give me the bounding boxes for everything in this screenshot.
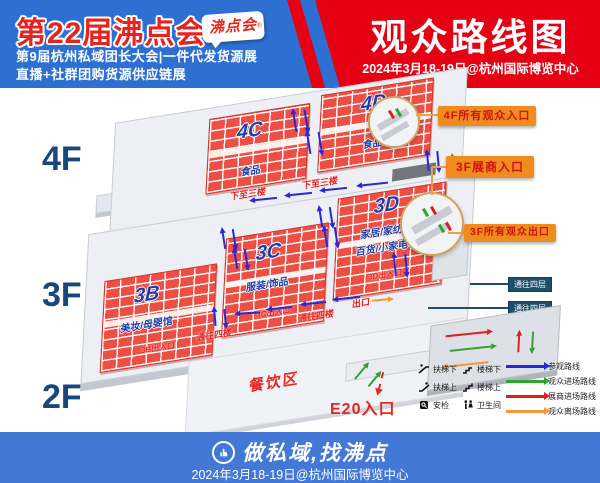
footer-slogan: 做私域,找沸点 — [242, 437, 388, 467]
route-arrow — [531, 332, 534, 349]
venue-map: 4F 3F 2F 4C 食品 4D 食品 下至三楼 下至三楼 — [0, 88, 600, 432]
legend-label: 安检 — [433, 400, 449, 411]
callout-connector — [432, 166, 446, 168]
header: 第22届沸点会 沸点会® 第9届杭州私域团长大会|一件代发货源展 直播+社群团购… — [0, 0, 600, 88]
hall-3b-category: 美妆/母婴馆 — [120, 312, 173, 336]
legend-route: 观众离场路线 — [506, 406, 596, 417]
floor-label-3f: 3F — [42, 276, 82, 315]
callout-connector — [431, 167, 433, 195]
hall-4c-code: 4C — [236, 118, 262, 145]
legend-item: 楼梯下 — [462, 363, 501, 375]
legend-item: 卫生间 — [462, 399, 501, 411]
legend-route: 观众进场路线 — [506, 376, 596, 387]
hall-3c-category: 服装/饰品 — [246, 272, 289, 294]
side-label-connector — [470, 283, 508, 285]
dining-area-label: 餐饮区 — [249, 367, 301, 396]
callout-connector — [448, 232, 464, 234]
brand-logo-text: 沸点会 — [208, 16, 257, 36]
route-line — [506, 395, 544, 398]
hall-3b: 3B 美妆/母婴馆 3B出入口 — [100, 263, 217, 373]
hall-3b-code: 3B — [133, 282, 159, 309]
footer-date: 2024年3月18-19日@杭州国际博览中心 — [0, 464, 600, 483]
legend-label: 扶梯下 — [433, 364, 457, 375]
header-subtitle-1: 第9届杭州私域团长大会|一件代发货源展 — [16, 46, 257, 65]
banner-date: 2024年3月18-19日@杭州国际博览中心 — [347, 58, 594, 77]
stairs-down-icon — [462, 363, 474, 375]
legend-route-label: 观众离场路线 — [548, 406, 596, 417]
legend-route-label: 参观路线 — [548, 361, 580, 372]
magnifier-inset-3f-exit — [400, 192, 464, 256]
floor-label-4f: 4F — [42, 140, 82, 179]
e20-entrance-label: E20入口 — [330, 395, 395, 419]
route-line — [506, 380, 544, 383]
callout-3f-exhibitor-entrance: 3F展商入口 — [446, 156, 534, 178]
hall-3c-code: 3C — [255, 239, 281, 266]
route-line — [506, 410, 544, 413]
side-label-to-4f-1: 通往四层 — [508, 277, 552, 292]
legend-item: 扶梯下 — [418, 363, 457, 375]
stairs-up-icon — [462, 381, 474, 393]
hall-3d-gate: 3D出入口 — [368, 266, 402, 283]
legend-item: 扶梯上 — [418, 381, 457, 393]
legend-item: 安检 — [418, 399, 449, 411]
legend-route-label: 观众进场路线 — [548, 376, 596, 387]
legend-label: 楼梯上 — [477, 382, 501, 393]
security-icon — [418, 399, 430, 411]
side-label-connector — [428, 307, 508, 309]
route-arrow — [446, 331, 488, 337]
escalator-down-icon — [418, 363, 430, 375]
legend-label: 卫生间 — [477, 400, 501, 411]
brand-logo: 沸点会® — [201, 11, 265, 43]
route-arrow — [450, 346, 492, 352]
route-arrow — [517, 336, 520, 353]
footer: 做私域,找沸点 2024年3月18-19日@杭州国际博览中心 — [0, 432, 600, 483]
callout-4f-entrance: 4F所有观众入口 — [438, 106, 536, 126]
banner-title: 观众路线图 — [347, 7, 594, 61]
callout-3f-exit: 3F所有观众出口 — [464, 224, 556, 242]
visitor-route-poster: 第22届沸点会 沸点会® 第9届杭州私域团长大会|一件代发货源展 直播+社群团购… — [0, 0, 600, 483]
legend: 扶梯下 楼梯下 扶梯上 楼梯上 安检 卫生间 — [418, 361, 598, 425]
floor-label-2f: 2F — [42, 378, 82, 417]
registered-mark: ® — [256, 12, 263, 40]
legend-route: 展商进场路线 — [506, 391, 596, 402]
legend-label: 楼梯下 — [477, 364, 501, 375]
legend-route: 参观路线 — [506, 361, 580, 372]
header-subtitle-2: 直播+社群团购货源供应链展 — [16, 64, 186, 83]
restroom-icon — [462, 399, 474, 411]
thumb-icon — [212, 441, 235, 464]
hall-3d-code: 3D — [373, 192, 399, 219]
escalator-up-icon — [418, 381, 430, 393]
callout-connector — [416, 114, 438, 116]
magnifier-inset-4f-entrance — [368, 96, 420, 148]
hall-4c-category: 食品 — [241, 160, 262, 178]
legend-label: 扶梯上 — [433, 382, 457, 393]
hall-3b-gate: 3B出入口 — [141, 340, 175, 357]
route-line — [506, 365, 544, 368]
legend-route-label: 展商进场路线 — [548, 391, 596, 402]
legend-item: 楼梯上 — [462, 381, 501, 393]
